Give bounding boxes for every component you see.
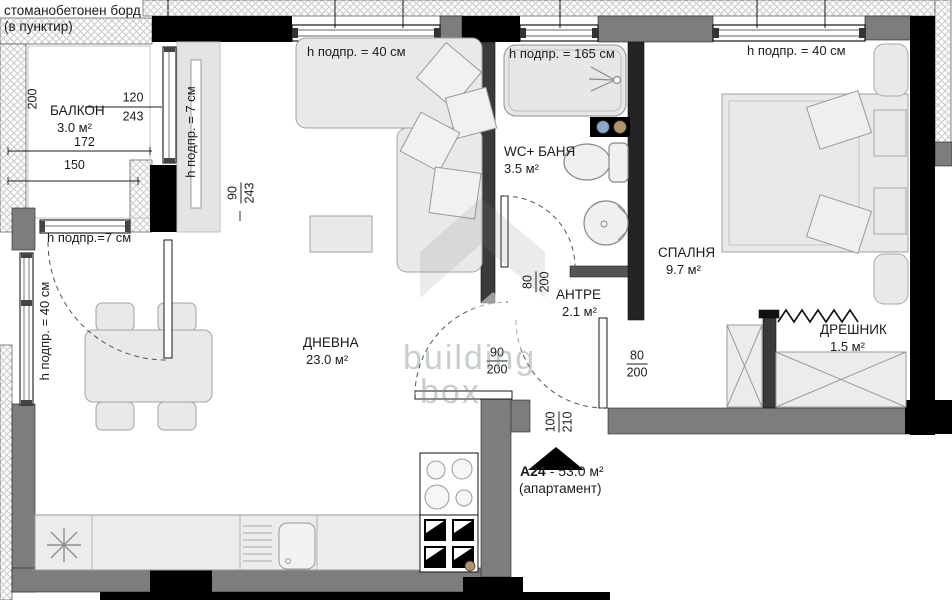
sill-note-living-window: h подпр. = 40 см [307,45,406,59]
room-area-bedroom: 9.7 м² [666,263,701,277]
apartment-id-line: A24- 53.0 м² [520,464,604,479]
room-label-hall: АНТРЕ [556,288,601,302]
apartment-type: (апартамент) [519,482,602,496]
room-label-bath: WC+ БАНЯ [504,145,575,159]
dining-set [85,303,212,430]
room-area-hall: 2.1 м² [562,305,597,319]
dim-bath-door: 80 200 [521,272,552,293]
bed [722,91,908,254]
bedroom-door-leaf [599,318,607,408]
apartment-area: - 53.0 м² [550,463,604,479]
wardrobe [727,325,906,407]
room-area-bath: 3.5 м² [504,162,539,176]
construction-note-line2: (в пунктир) [4,20,73,34]
sill-note-left-window: h подпр. = 40 см [38,282,52,381]
sill-note-bath-window: h подпр. = 165 см [509,47,615,61]
stove [420,453,478,515]
closet-rod-zigzag [778,310,858,322]
dining-table [85,330,212,402]
dining-chair [158,402,196,430]
sill-note-bedroom-window: h подпр. = 40 см [747,44,846,58]
watermark-text-line1: building [403,341,536,377]
nightstand [874,254,908,304]
bathroom-window [520,25,598,41]
bedroom-window [713,25,865,41]
room-label-living: ДНЕВНА [303,336,359,350]
plumbing-connections [590,117,630,137]
dim-balcony-depth: 200 [26,89,39,110]
room-area-closet: 1.5 м² [830,340,865,354]
room-label-balcony: БАЛКОН [50,104,105,118]
wash-basin [584,201,628,245]
construction-note-line1: стоманобетонен борд [4,4,141,18]
room-label-bedroom: СПАЛНЯ [658,246,715,260]
coffee-table [310,216,372,252]
dim-balcony-window: 90 243 [226,183,257,204]
sill-note-parapet: h подпр.=7 см [47,231,131,245]
living-left-window [20,253,33,405]
dining-chair [96,402,134,430]
appliance-symbol [47,528,81,562]
dim-balcony-len2: 150 [64,159,85,172]
utility-point [465,561,475,571]
dim-entry-door: 100 210 [544,412,575,433]
sill-note-balcony-door: h подпр. = 7 см [184,86,198,177]
apartment-id: A24 [520,463,546,479]
dim-balcony-len: 172 [74,136,95,149]
floor-plan: стоманобетонен борд (в пунктир) 200 БАЛК… [0,0,952,600]
dim-bedroom-door: 80 200 [627,349,648,380]
dim-balcony-door: 120 243 [123,91,144,124]
nightstand [874,44,908,96]
balcony-door-leaf [164,240,172,358]
kitchen-counter [35,515,477,570]
room-area-balcony: 3.0 м² [57,121,92,135]
watermark-text-line2: box [420,375,481,411]
room-area-living: 23.0 м² [306,353,348,367]
balcony-door-glazing [163,47,176,163]
room-label-closet: ДРЕШНИК [820,323,887,337]
oven-unit [420,515,478,572]
dining-chair [96,303,134,331]
